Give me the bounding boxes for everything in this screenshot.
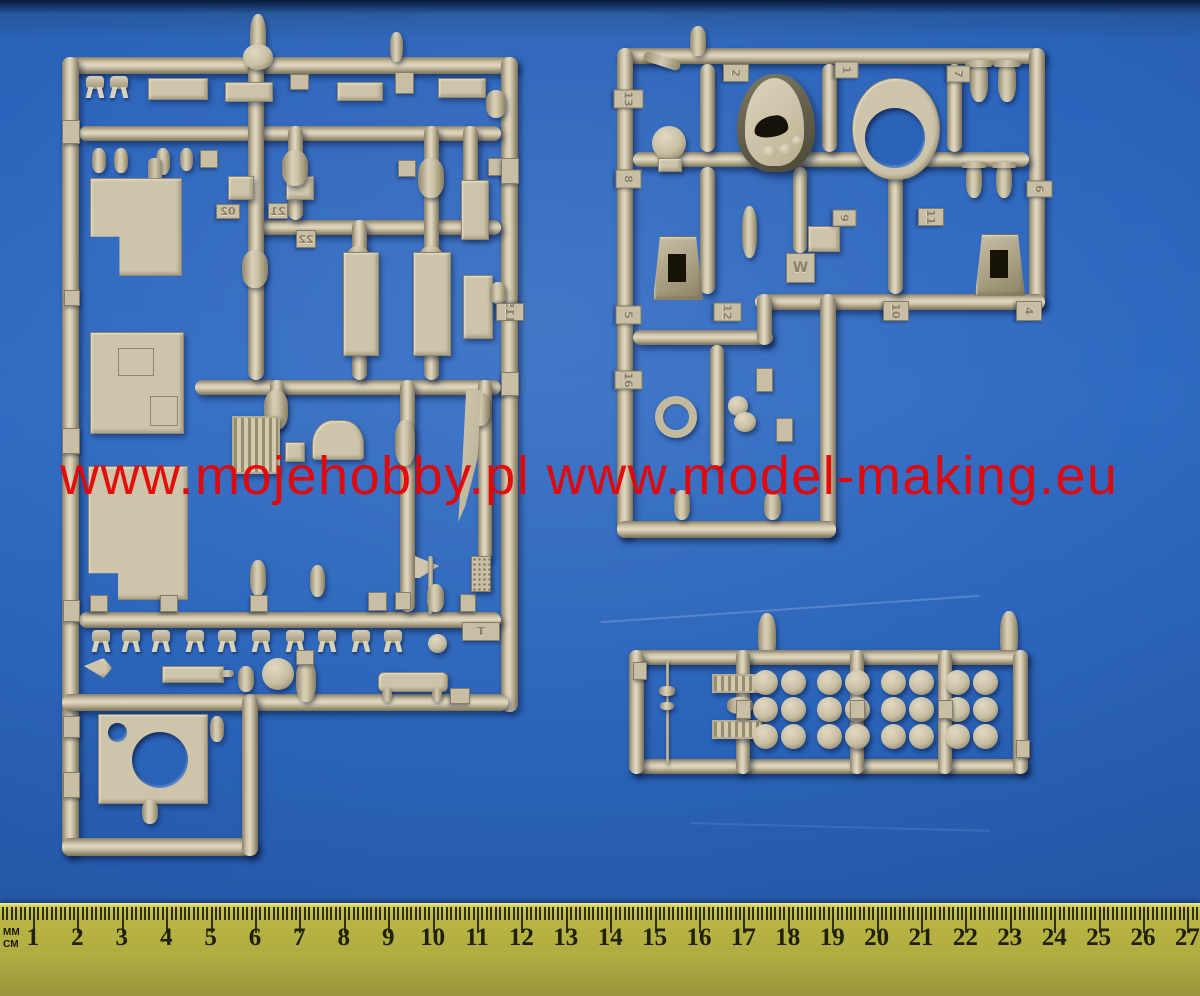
cylinder-part [238,666,254,692]
road-wheel-part [781,724,806,749]
ruler-tick [992,907,994,920]
ruler-tick [837,907,839,920]
ruler-tick [46,907,48,920]
photo-top-shadow-edge [0,0,1200,14]
ruler-tick [988,907,990,920]
ruler-tick [1076,907,1078,920]
ruler-tick [868,907,870,920]
clip-part [384,630,402,643]
ruler-tick [1081,907,1083,920]
ruler-tick [384,907,386,920]
road-wheel-part [753,697,778,722]
ruler-tick [228,907,230,920]
muzzle-part [220,670,234,677]
sprue-bar [888,167,903,294]
ruler-tick [82,907,84,920]
ruler-tick [24,907,26,920]
cylinder-part [742,206,757,258]
ruler-number: 14 [598,925,623,950]
ruler-tick [1023,907,1025,920]
plate-small-hole [108,723,127,742]
ruler-tick [1041,907,1043,920]
ruler-tick [473,907,475,920]
ruler-tick [455,907,457,920]
part-number-tag: 10 [883,301,909,321]
part-number-tag: 7 [947,66,971,83]
wheel-part [428,634,447,653]
sprue-bar [62,838,258,856]
watermark-text: www.mojehobby.pl www.model-making.eu [60,449,1118,503]
ruler-tick [930,907,932,920]
road-wheel-part [817,697,842,722]
gun-barrel-part [162,666,224,683]
ruler-tick [1103,907,1105,920]
ruler-tick [313,907,315,920]
ruler-tick [402,907,404,920]
ruler-tick [424,907,426,920]
road-wheel-part [945,724,970,749]
ruler-tick [339,907,341,920]
cylinder-part [180,148,193,171]
ruler-number: 5 [204,925,217,950]
part-number-tag [62,120,80,144]
ruler-tick [206,907,208,920]
ruler-tick [428,907,430,920]
sprue-bar [195,380,501,395]
part-number-tag: 6 [1027,181,1053,198]
road-wheel-part [909,670,934,695]
ruler-tick [712,907,714,920]
road-wheel-part [845,724,870,749]
ruler-tick [1090,907,1092,920]
plate-large-hole [132,732,188,788]
ruler-number: 21 [909,925,934,950]
ruler-number: 16 [687,925,712,950]
ruler-number: 4 [160,925,173,950]
ruler-tick [246,907,248,920]
part-number-tag [398,160,416,177]
wheel-part [262,658,294,690]
road-wheel-part [909,697,934,722]
ruler-tick [148,907,150,920]
ruler-tick [15,907,17,920]
ruler-tick [348,907,350,920]
ruler-tick [95,907,97,920]
part-number-tag [160,595,178,612]
ruler-tick [1121,907,1123,920]
ruler-tick [1147,907,1149,920]
clip-part [218,630,236,643]
ruler-tick [668,907,670,920]
peg-cap [991,162,1017,168]
part-number-tag: 2 [723,64,749,82]
part-number-tag [395,592,411,610]
ruler-tick [530,907,532,920]
road-wheel-part [881,724,906,749]
ruler-tick [779,907,781,920]
surface-scratch [600,595,979,624]
ruler-tick [557,907,559,920]
ruler-tick [961,907,963,920]
part-number-tag [64,290,80,306]
ruler-tick [686,907,688,920]
drum-part [418,158,444,198]
part-number-tag: 8 [616,170,642,189]
part-number-tag: 1 [835,62,859,79]
ruler-tick [513,907,515,920]
ruler-units: MM CM [3,927,20,950]
sprue-stub [142,800,158,824]
plate-part [438,78,486,98]
part-number-tag [63,600,80,622]
drum-part [282,150,308,186]
ruler-tick [703,907,705,920]
ruler-tick [996,907,998,920]
ruler-tick [899,907,901,920]
part-number-tag [850,700,865,719]
ruler-tick [131,907,133,920]
ruler-tick [761,907,763,920]
ruler-tick [632,907,634,920]
ruler-tick [894,907,896,920]
ruler-tick [157,907,159,920]
ruler-tick [144,907,146,920]
knob-part [734,412,756,432]
ruler-tick [912,907,914,920]
ruler-tick [1063,907,1065,920]
part-number-tag [501,372,519,396]
ruler-tick [979,907,981,920]
ruler-tick [153,907,155,920]
ruler-tick [952,907,954,920]
ruler-tick [481,907,483,920]
ruler-number: 25 [1086,925,1111,950]
turret-detail-dot [779,144,793,156]
ruler-tick [544,907,546,920]
ruler-tick [330,907,332,920]
ruler-tick [1152,907,1154,920]
ruler-tick [859,907,861,920]
ruler-tick [814,907,816,920]
ruler-tick [175,907,177,920]
ruler-tick [286,907,288,920]
antenna-hub [659,686,675,696]
ruler-tick [970,907,972,920]
axle-foot [382,688,392,702]
plate-part [337,82,383,101]
ruler-tick [308,907,310,920]
ruler-tick [552,907,554,920]
ruler-tick [890,907,892,920]
cylinder-part [250,560,266,596]
bracket-detail [658,158,682,172]
ruler-number: 22 [953,925,978,950]
ruler-tick [1183,907,1185,920]
ruler-tick [646,907,648,920]
sprue-bar [242,694,258,856]
ruler-tick [197,907,199,920]
part-number-tag [501,158,519,184]
part-number-tag [90,595,108,612]
part-number-tag [395,72,414,94]
sprue-stub [243,44,273,70]
sprue-bar [62,57,518,74]
ruler-tick [1059,907,1061,920]
road-wheel-part [881,670,906,695]
ruler-tick [51,907,53,920]
ruler-tick [11,907,13,920]
ruler-number: 3 [116,925,129,950]
part-number-tag [200,150,218,168]
ruler-tick [806,907,808,920]
ruler-tick [171,907,173,920]
ruler-tick [188,907,190,920]
ruler-tick [215,907,217,920]
part-number-tag: 11 [918,208,944,226]
ruler-tick [597,907,599,920]
ruler-tick [1116,907,1118,920]
ruler-tick [1170,907,1172,920]
ruler-tick [624,907,626,920]
ruler-tick [828,907,830,920]
ruler-tick [681,907,683,920]
ruler-tick [184,907,186,920]
textured-plate-part [471,556,491,592]
hull-plate-part [90,178,182,276]
ruler-tick [1050,907,1052,920]
part-number-tag: 02 [216,204,240,219]
ruler-number: 19 [820,925,845,950]
ruler-tick [783,907,785,920]
drum-part [427,584,444,612]
ruler-tick [584,907,586,920]
clip-part [186,630,204,643]
ruler-tick [42,907,44,920]
ruler-tick [180,907,182,920]
sprue-bar [79,612,501,628]
ruler-tick [468,907,470,920]
part-number-tag: 16 [615,371,643,390]
ruler-tick [841,907,843,920]
sprue-bar [757,294,772,345]
ruler-tick [561,907,563,920]
ruler-tick [317,907,319,920]
part-number-tag: 4 [1016,301,1042,321]
road-wheel-part [817,670,842,695]
ruler-tick [1001,907,1003,920]
pennant-part [415,556,439,578]
ruler-tick [797,907,799,920]
ruler-tick [735,907,737,920]
ruler-tick [108,907,110,920]
ruler-tick [64,907,66,920]
part-number-tag [1016,740,1030,758]
ruler-tick [1156,907,1158,920]
ruler-tick [459,907,461,920]
drum-part [242,250,268,288]
ruler-number: 10 [420,925,445,950]
ruler-tick [695,907,697,920]
ruler-tick [259,907,261,920]
sprue-bar [629,650,1028,665]
ruler-tick [730,907,732,920]
ruler-tick [974,907,976,920]
ruler-tick [100,907,102,920]
ruler-tick [570,907,572,920]
ruler-number: 17 [731,925,756,950]
long-plate-part [413,252,451,356]
ruler-tick [1196,907,1198,920]
ruler-tick [117,907,119,920]
ruler-tick [29,907,31,920]
ruler-tick [535,907,537,920]
ruler-number: 12 [509,925,534,950]
clip-part [252,630,270,643]
cylinder-part [92,148,106,173]
ruler-tick [486,907,488,920]
ruler-tick [792,907,794,920]
ruler-tick [1085,907,1087,920]
ruler-tick [224,907,226,920]
turret-detail-dot [763,146,777,158]
part-number-tag: 9 [833,210,857,227]
ruler-tick [1019,907,1021,920]
ruler-tick [548,907,550,920]
ruler-tick [739,907,741,920]
plate-detail [118,348,154,376]
ruler-tick [113,907,115,920]
ruler-tick [908,907,910,920]
ruler-tick [925,907,927,920]
ruler-tick [1014,907,1016,920]
ruler-number: 8 [338,925,351,950]
ruler-tick [55,907,57,920]
ruler-tick [939,907,941,920]
plate-part [225,82,273,102]
part-number-tag: T [462,622,500,641]
ruler-tick [126,907,128,920]
ruler-tick [690,907,692,920]
sprue-bar [700,64,715,152]
ruler-tick [801,907,803,920]
ruler-number: 23 [997,925,1022,950]
road-wheel-part [881,697,906,722]
ruler-tick [295,907,297,920]
ruler-tick [397,907,399,920]
ruler-number: 20 [864,925,889,950]
ruler-tick [219,907,221,920]
ruler-tick [1094,907,1096,920]
ruler-tick [1045,907,1047,920]
sprue-stub [210,716,224,742]
part-number-tag [756,368,773,392]
road-wheel-part [973,697,998,722]
ruler-tick [353,907,355,920]
ruler-tick [850,907,852,920]
ruler-number: 26 [1131,925,1156,950]
clip-part [152,630,170,643]
elbow-part [296,660,316,702]
ruler-tick [464,907,466,920]
part-number-tag: 12 [714,303,742,322]
part-number-tag [736,700,751,719]
ruler-tick [441,907,443,920]
ruler-tick [575,907,577,920]
clip-part [122,630,140,643]
road-wheel-part [973,670,998,695]
ruler-tick [326,907,328,920]
clip-part [352,630,370,643]
ruler-tick [1125,907,1127,920]
bracket-opening [668,254,686,282]
road-wheel-part [909,724,934,749]
ruler-tick [677,907,679,920]
ruler-tick [202,907,204,920]
ruler-tick [1179,907,1181,920]
ruler-tick [6,907,8,920]
ruler-tick [957,907,959,920]
part-number-tag [63,772,80,798]
ruler-tick [410,907,412,920]
surface-scratch [690,822,990,832]
photo-model-kit-sprues: 21 22 02 115 [0,0,1200,996]
ruler-tick [2,907,4,920]
road-wheel-part [781,670,806,695]
ruler-tick [504,907,506,920]
part-number-tag: 13 [614,90,644,109]
ruler-tick [872,907,874,920]
ruler-tick [819,907,821,920]
ruler-tick [450,907,452,920]
ruler-tick [406,907,408,920]
ruler-number: 6 [249,925,262,950]
ruler-number: 24 [1042,925,1067,950]
ruler-tick [1028,907,1030,920]
ruler-tick [251,907,253,920]
ruler-tick [854,907,856,920]
long-plate-part [343,252,379,356]
ruler-tick [934,907,936,920]
part-number-tag [938,700,953,719]
ruler-tick [526,907,528,920]
ruler-tick [499,907,501,920]
ruler-tick [1005,907,1007,920]
ruler-tick [140,907,142,920]
ruler-number: 11 [465,925,489,950]
ruler-tick [628,907,630,920]
ruler-tick [766,907,768,920]
small-part [486,90,506,118]
ruler-number: 2 [71,925,84,950]
ruler-tick [748,907,750,920]
ruler-tick [810,907,812,920]
part-number-tag [776,418,793,442]
ruler-tick [1130,907,1132,920]
ruler-tick [881,907,883,920]
clip-part [318,630,336,643]
ruler-tick [375,907,377,920]
ruler-tick [863,907,865,920]
clip-part [92,630,110,643]
ruler-tick [291,907,293,920]
ruler-tick [357,907,359,920]
part-number-tag [290,74,309,90]
ruler-tick [579,907,581,920]
cylinder-part [114,148,128,173]
ruler-tick [983,907,985,920]
sprue-bar [700,167,715,294]
small-part [490,282,506,304]
